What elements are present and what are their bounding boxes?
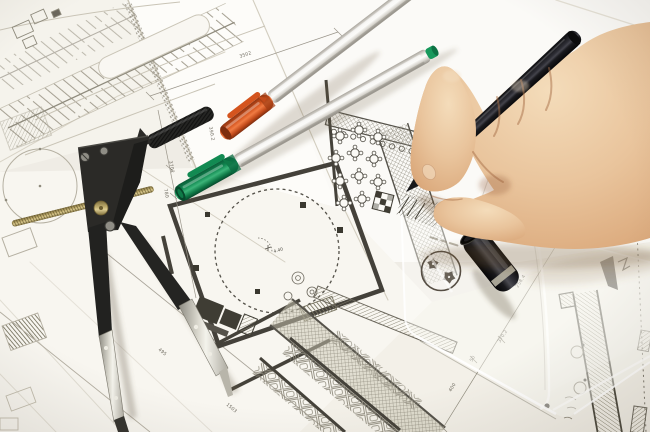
- photo-canvas: 4.40 3502 390.2 3702 780 495 1503: [0, 0, 650, 432]
- photo-architect-drawing: 4.40 3502 390.2 3702 780 495 1503: [0, 0, 650, 432]
- lighting-overlays: [0, 0, 650, 432]
